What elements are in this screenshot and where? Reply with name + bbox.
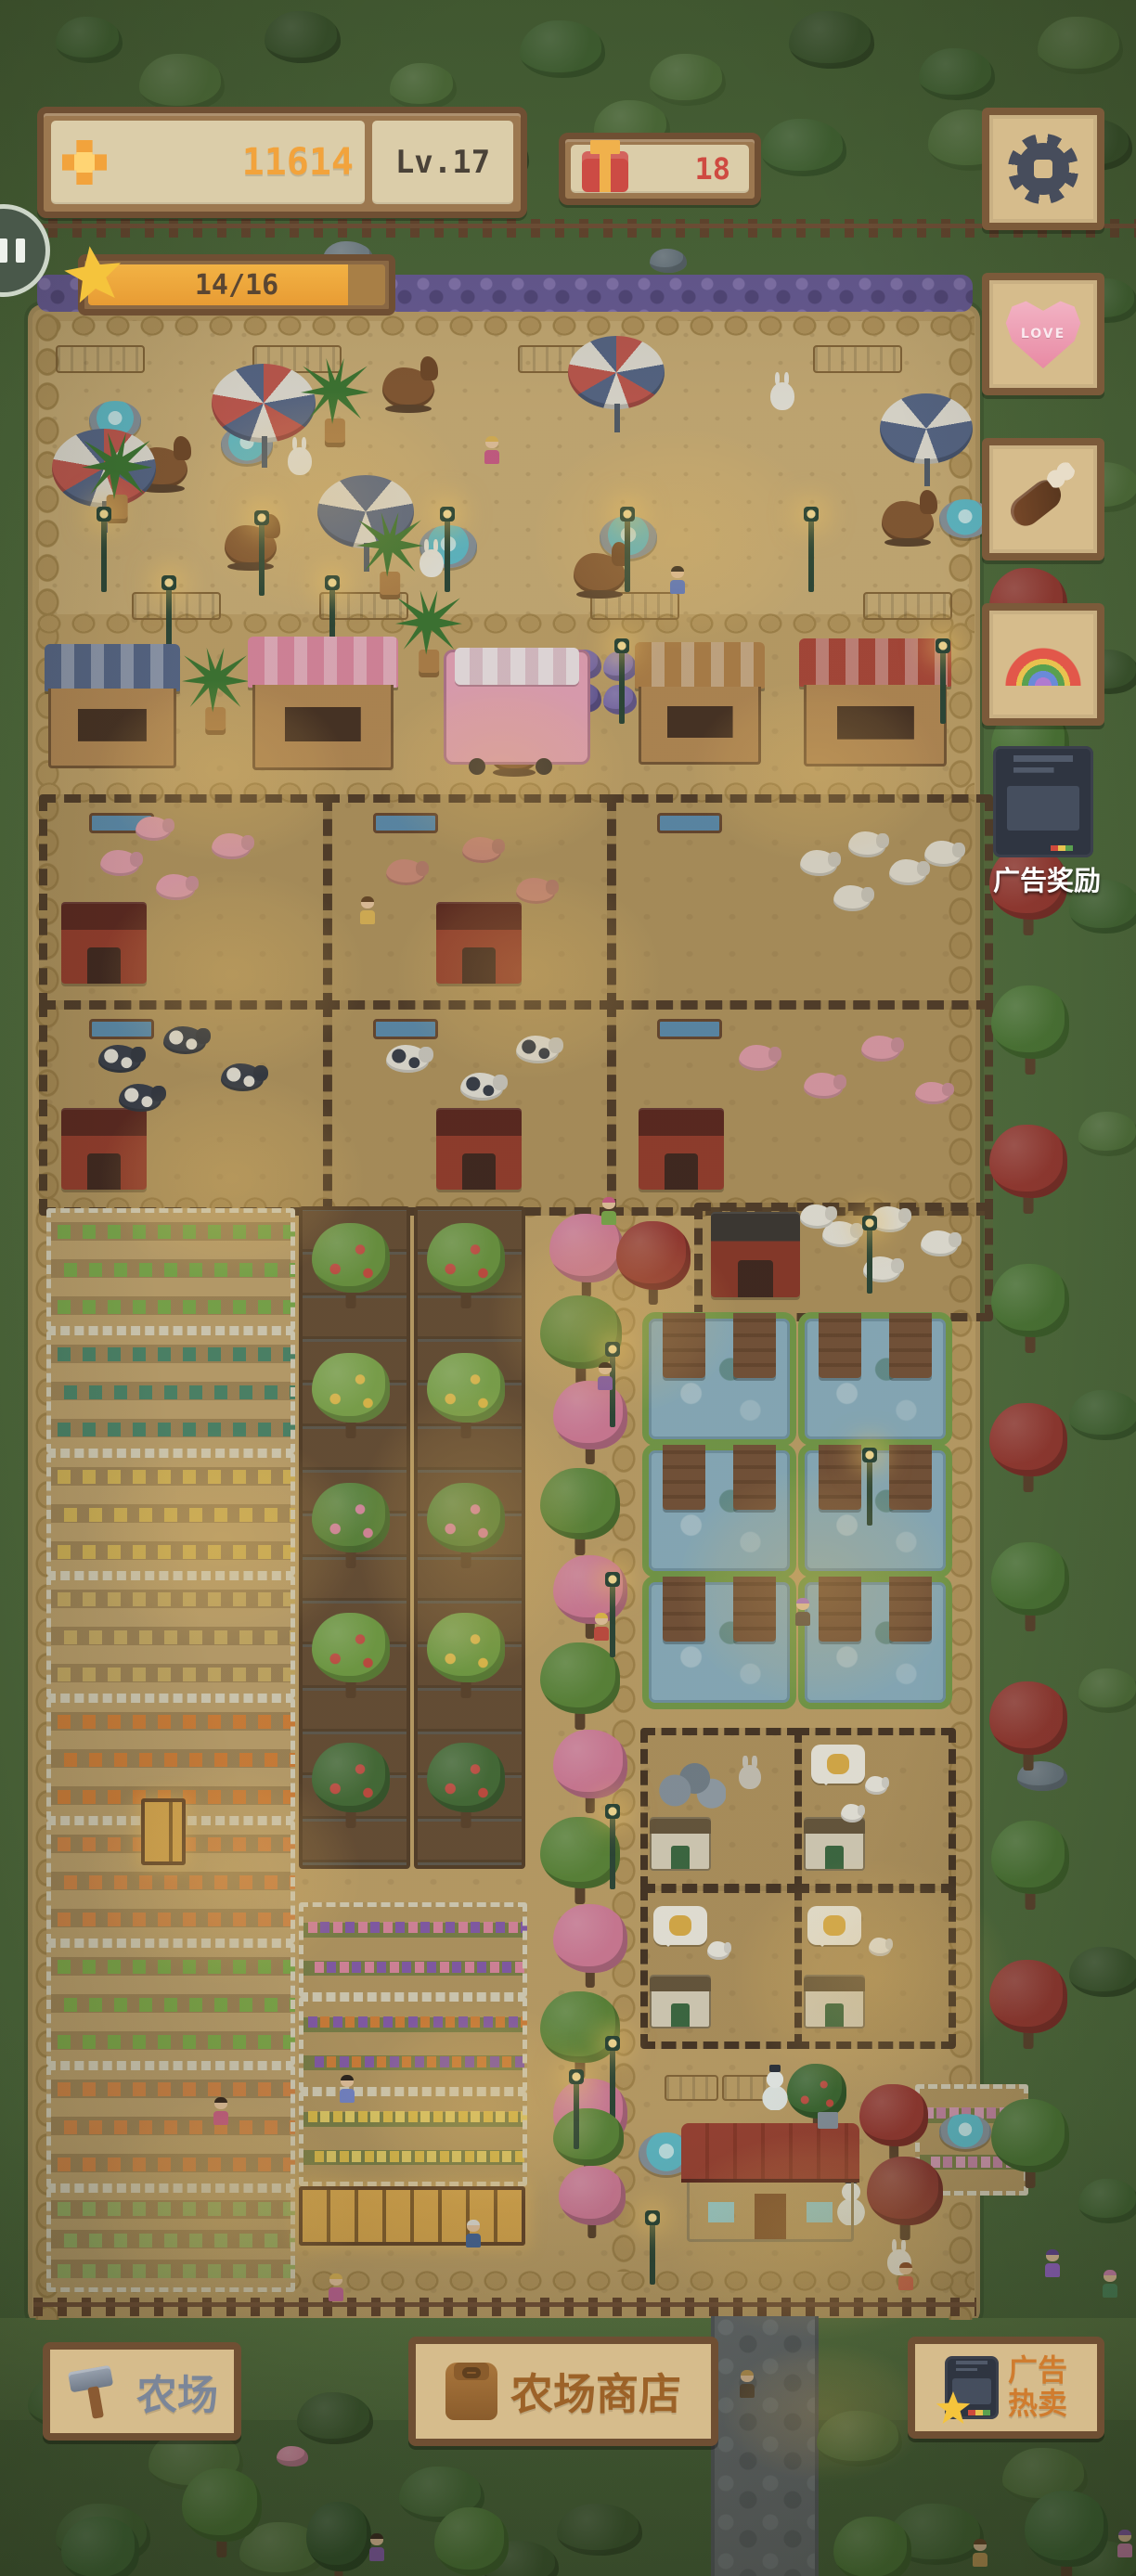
farm-animal[interactable] — [924, 841, 962, 867]
farmhouse[interactable] — [687, 2125, 854, 2242]
market-stall[interactable] — [48, 644, 176, 768]
villager[interactable] — [600, 1197, 618, 1225]
fountain — [939, 2114, 991, 2149]
farm-animal[interactable] — [861, 1036, 900, 1062]
bush — [1078, 2179, 1136, 2223]
fishing-pond[interactable] — [798, 1312, 952, 1446]
bush — [1069, 1947, 1136, 1997]
fishing-pond[interactable] — [642, 1576, 796, 1709]
farm-animal[interactable] — [800, 1204, 833, 1229]
rock-pile — [655, 1759, 726, 1810]
currency-panel[interactable]: 11614 Lv.17 — [37, 107, 527, 218]
farm-animal[interactable] — [156, 874, 195, 900]
bush — [1078, 1112, 1136, 1156]
barn[interactable] — [436, 902, 522, 984]
crop-plot[interactable] — [46, 1576, 295, 1698]
chicken-coop[interactable] — [650, 1975, 711, 2029]
farm-animal[interactable] — [921, 1230, 958, 1256]
love-button[interactable]: LOVE — [982, 273, 1104, 395]
chicken-coop[interactable] — [650, 1817, 711, 1871]
rabbit — [739, 1765, 761, 1789]
bench — [863, 592, 952, 620]
rocking-horse — [382, 367, 434, 408]
villager[interactable] — [897, 2262, 915, 2290]
lamp-post — [438, 507, 457, 592]
gear-icon — [1008, 134, 1078, 204]
coin-amount: 11614 — [116, 141, 354, 184]
bush — [297, 2392, 373, 2444]
stone-road — [711, 2316, 819, 2576]
barn[interactable] — [711, 1212, 800, 1297]
lamp-post — [861, 1216, 878, 1294]
coin-icon — [62, 140, 107, 185]
farm-animal[interactable] — [707, 1941, 729, 1960]
villager[interactable] — [338, 2075, 356, 2103]
farm-animal[interactable] — [739, 1045, 778, 1071]
tree — [312, 1223, 390, 1308]
villager[interactable] — [1043, 2249, 1062, 2277]
ad-sale-label: 广告 热卖 — [1008, 2354, 1067, 2421]
gift-counter[interactable]: 18 — [571, 145, 749, 193]
tree — [989, 1125, 1067, 1214]
farm-animal[interactable] — [386, 1045, 429, 1073]
farm-animal[interactable] — [848, 831, 885, 857]
tree — [427, 1483, 505, 1568]
villager[interactable] — [358, 896, 377, 924]
bench — [665, 2075, 718, 2101]
lamp-post — [95, 507, 113, 592]
palm-tree — [356, 512, 423, 599]
drumstick-icon — [1004, 460, 1082, 538]
villager[interactable] — [738, 2370, 756, 2398]
lamp-post — [861, 1448, 878, 1526]
farm-animal[interactable] — [221, 1063, 264, 1091]
farm-animal[interactable] — [462, 837, 501, 863]
rainbow-icon — [1004, 643, 1082, 686]
tree — [989, 1681, 1067, 1771]
water-trough — [657, 813, 722, 833]
tree — [312, 1613, 390, 1698]
tree — [540, 1468, 620, 1555]
lamp-post — [568, 2069, 585, 2149]
farm-animal[interactable] — [869, 1938, 891, 1956]
bush — [265, 11, 341, 63]
bush — [817, 2411, 902, 2467]
bush — [650, 54, 726, 106]
tree — [427, 1743, 505, 1828]
tree — [991, 1542, 1069, 1631]
snowman — [759, 2067, 791, 2110]
tree — [991, 1264, 1069, 1353]
farm-button[interactable]: 农场 — [43, 2342, 241, 2441]
rainbow-button[interactable] — [982, 603, 1104, 726]
market-stall[interactable] — [639, 642, 761, 765]
barn[interactable] — [436, 1108, 522, 1190]
market-stall[interactable] — [252, 637, 394, 770]
fence-row — [0, 219, 1136, 238]
farm-animal[interactable] — [98, 1045, 141, 1073]
food-truck[interactable] — [444, 650, 590, 765]
farm-animal[interactable] — [841, 1804, 863, 1823]
fishing-pond[interactable] — [642, 1312, 796, 1446]
bush — [919, 48, 995, 100]
bush — [557, 2504, 642, 2556]
harvest-bubble[interactable] — [653, 1906, 707, 1945]
produce-crates[interactable] — [141, 1798, 186, 1865]
bush — [390, 63, 457, 109]
chicken-coop[interactable] — [804, 1817, 865, 1871]
villager[interactable] — [464, 2220, 483, 2248]
progress-label: 14/16 — [84, 261, 389, 309]
tree — [306, 2502, 371, 2576]
farm-animal[interactable] — [386, 859, 425, 885]
ad-reward-button[interactable] — [993, 746, 1093, 857]
tree — [182, 2468, 262, 2557]
villager[interactable] — [592, 1613, 611, 1641]
gift-icon — [582, 151, 628, 192]
farm-animal[interactable] — [800, 850, 837, 876]
crop-plot[interactable] — [46, 1943, 295, 2066]
farm-animal[interactable] — [516, 1036, 559, 1063]
bush — [1038, 17, 1123, 74]
flower-bed[interactable] — [299, 2092, 527, 2186]
farm-animal[interactable] — [516, 878, 555, 904]
farm-animal[interactable] — [119, 1084, 161, 1112]
farm-animal[interactable] — [915, 1082, 950, 1104]
villager[interactable] — [212, 2097, 230, 2125]
tree — [616, 1221, 691, 1305]
barn[interactable] — [639, 1108, 724, 1190]
game-screen: 11614 Lv.17 18 14/16 LOVE 广告奖励 — [0, 0, 1136, 2576]
bush — [1078, 1668, 1136, 1713]
farm-animal[interactable] — [833, 885, 871, 911]
palm-tree — [82, 432, 152, 523]
chicken-coop[interactable] — [804, 1975, 865, 2029]
lamp-post — [802, 507, 820, 592]
tree — [991, 985, 1069, 1075]
water-trough — [89, 1019, 154, 1039]
palm-tree — [182, 648, 249, 735]
flower-bed[interactable] — [299, 1997, 527, 2092]
lamp-post — [644, 2210, 661, 2285]
tree — [61, 2517, 139, 2576]
tree — [312, 1353, 390, 1438]
lamp-post — [618, 507, 637, 592]
tree — [553, 1730, 627, 1813]
bush — [520, 20, 605, 78]
villager[interactable] — [1116, 2530, 1134, 2557]
tree — [427, 1613, 505, 1698]
market-stall[interactable] — [804, 638, 947, 766]
lamp-post — [603, 1804, 622, 1889]
farm-animal[interactable] — [889, 859, 926, 885]
tree — [989, 1403, 1067, 1492]
harvest-bubble[interactable] — [811, 1745, 865, 1784]
tree — [427, 1223, 505, 1308]
tree — [1025, 2491, 1108, 2576]
bag-icon — [445, 2363, 497, 2420]
produce-crates[interactable] — [299, 2186, 525, 2246]
star-progress-bar[interactable]: 14/16 — [78, 254, 395, 316]
pause-icon — [0, 238, 7, 263]
villager[interactable] — [327, 2273, 345, 2301]
bench — [56, 345, 145, 373]
hammer-icon — [61, 2358, 128, 2425]
tree — [427, 1353, 505, 1438]
water-trough — [373, 813, 438, 833]
villager[interactable] — [668, 566, 687, 594]
coin-counter[interactable]: 11614 — [51, 121, 365, 204]
lamp-post — [934, 638, 952, 724]
rabbit — [770, 382, 794, 410]
path-tile-row — [33, 312, 975, 340]
ad-hot-sale-button[interactable]: 广告 热卖 — [908, 2337, 1104, 2439]
tree — [312, 1743, 390, 1828]
farm-animal[interactable] — [212, 833, 251, 859]
bush — [56, 17, 123, 63]
food-button[interactable] — [982, 438, 1104, 560]
tree — [434, 2507, 509, 2576]
bush — [277, 2446, 308, 2467]
fishing-pond[interactable] — [798, 1576, 952, 1709]
tree — [867, 2157, 943, 2240]
villager[interactable] — [1101, 2270, 1119, 2298]
heart-icon: LOVE — [1004, 300, 1082, 368]
tree — [859, 2084, 928, 2160]
farm-animal[interactable] — [804, 1073, 843, 1099]
farm-button-label: 农场 — [136, 2362, 218, 2421]
beach-umbrella — [568, 336, 665, 432]
crop-plot[interactable] — [46, 2188, 295, 2292]
bush — [1069, 1390, 1136, 1440]
tree — [559, 2166, 626, 2238]
crop-plot[interactable] — [46, 1208, 295, 1331]
lamp-post — [613, 638, 631, 724]
bush — [650, 249, 687, 273]
villager[interactable] — [368, 2533, 386, 2561]
fishing-pond[interactable] — [642, 1444, 796, 1578]
bush — [761, 119, 846, 176]
tree — [991, 1821, 1069, 1910]
bush — [789, 11, 874, 69]
farm-animal[interactable] — [100, 850, 139, 876]
water-trough — [657, 1019, 722, 1039]
bench — [813, 345, 902, 373]
settings-button[interactable] — [982, 108, 1104, 230]
farm-animal[interactable] — [136, 817, 171, 841]
tree — [312, 1483, 390, 1568]
farm-shop-button[interactable]: 农场商店 — [408, 2337, 718, 2446]
crop-plot[interactable] — [46, 2066, 295, 2188]
flower-bed[interactable] — [299, 1902, 527, 1997]
farm-animal[interactable] — [865, 1776, 887, 1795]
barn[interactable] — [61, 902, 147, 984]
bush — [139, 54, 225, 111]
tree — [553, 1904, 627, 1988]
tree — [833, 2517, 911, 2576]
barn[interactable] — [61, 1108, 147, 1190]
level-badge: Lv.17 — [372, 121, 513, 204]
gift-count: 18 — [638, 151, 738, 187]
palm-tree — [301, 358, 369, 447]
crop-plot[interactable] — [46, 1453, 295, 1576]
villager[interactable] — [483, 436, 501, 464]
lamp-post — [252, 510, 271, 596]
farm-animal[interactable] — [163, 1026, 206, 1054]
rocking-horse — [882, 501, 934, 542]
water-trough — [373, 1019, 438, 1039]
harvest-bubble[interactable] — [807, 1906, 861, 1945]
farm-animal[interactable] — [460, 1073, 503, 1101]
tree — [989, 1960, 1067, 2049]
tree — [991, 2099, 1069, 2188]
ad-reward-label: 广告奖励 — [965, 859, 1129, 898]
villager[interactable] — [596, 1362, 614, 1390]
tree — [549, 1214, 624, 1297]
villager[interactable] — [794, 1598, 812, 1626]
beach-umbrella — [880, 393, 973, 486]
gift-counter-panel[interactable]: 18 — [559, 133, 761, 205]
villager[interactable] — [971, 2539, 989, 2567]
fence-row — [33, 2298, 976, 2316]
love-label: LOVE — [1021, 327, 1065, 341]
crop-plot[interactable] — [46, 1331, 295, 1453]
ad-sale-icon-wrap — [945, 2356, 999, 2419]
farm-shop-label: 农场商店 — [510, 2361, 681, 2422]
